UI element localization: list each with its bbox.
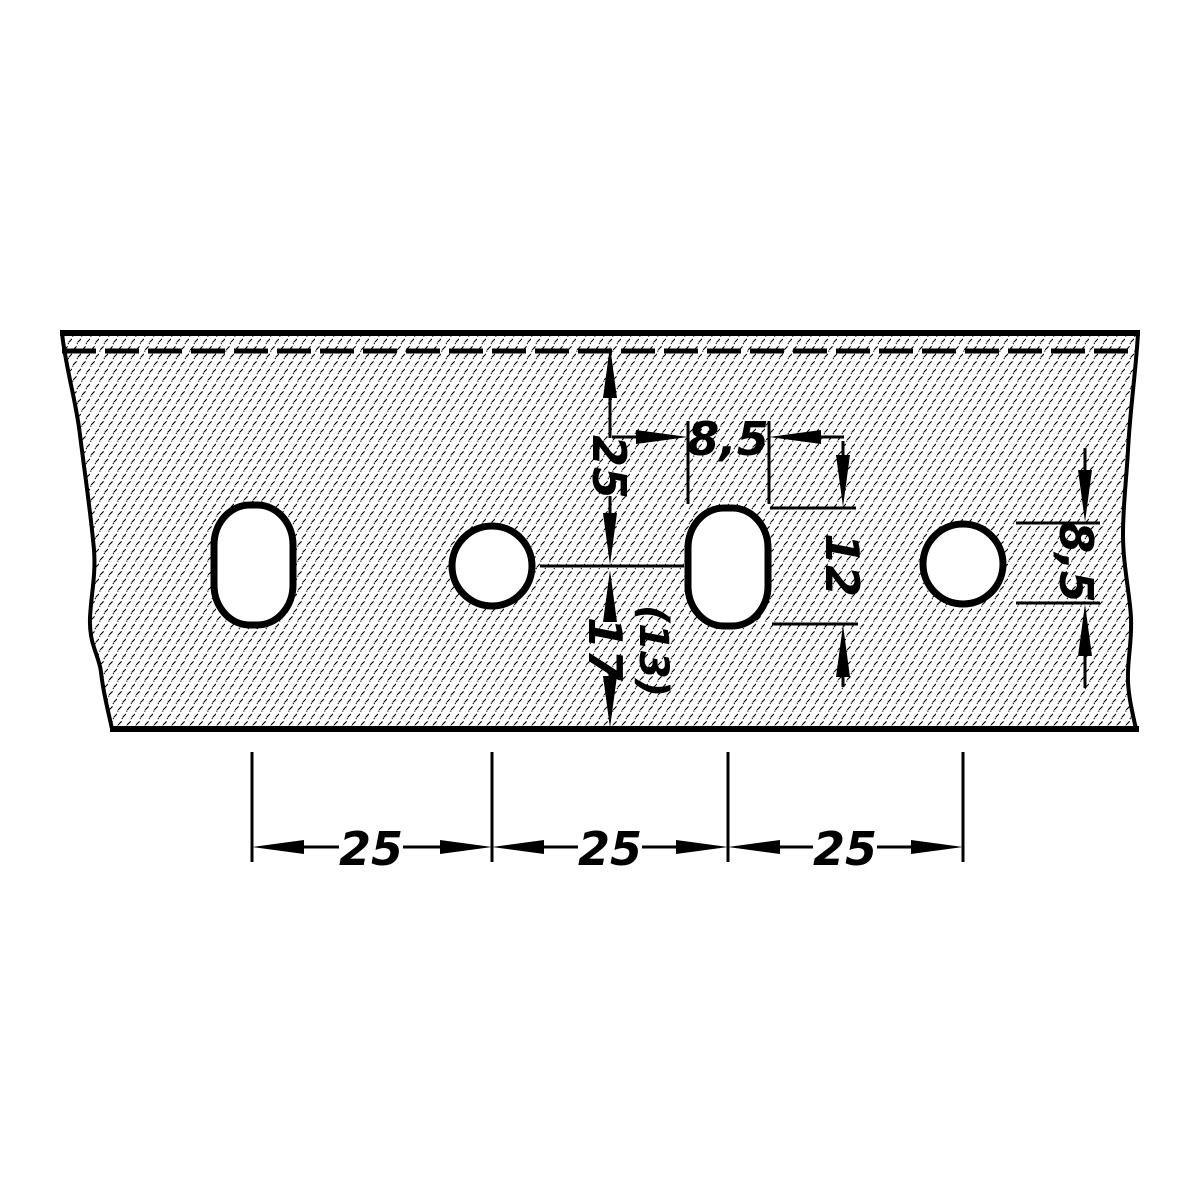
- dim-label-center-to-bottom: 17: [578, 617, 632, 681]
- technical-drawing-canvas: 25 17 (13) 8,5 12 8,5: [0, 0, 1200, 1200]
- hole-round-4: [923, 524, 1003, 604]
- hole-slot-3: [688, 508, 768, 626]
- technical-drawing-page: 25 17 (13) 8,5 12 8,5: [0, 0, 1200, 1200]
- dim-label-pitch-1: 25: [339, 822, 403, 876]
- hole-slot-1: [214, 505, 293, 625]
- hole-round-2: [452, 526, 532, 606]
- dim-label-pitch-3: 25: [813, 822, 877, 876]
- dim-label-center-to-bottom-aux: (13): [630, 605, 676, 697]
- dim-label-top-to-center: 25: [582, 435, 636, 499]
- dim-label-pitch-2: 25: [578, 822, 642, 876]
- dim-label-slot-width: 8,5: [687, 412, 769, 466]
- dim-label-hole-diameter: 8,5: [1049, 521, 1103, 603]
- dim-label-slot-length: 12: [815, 533, 869, 597]
